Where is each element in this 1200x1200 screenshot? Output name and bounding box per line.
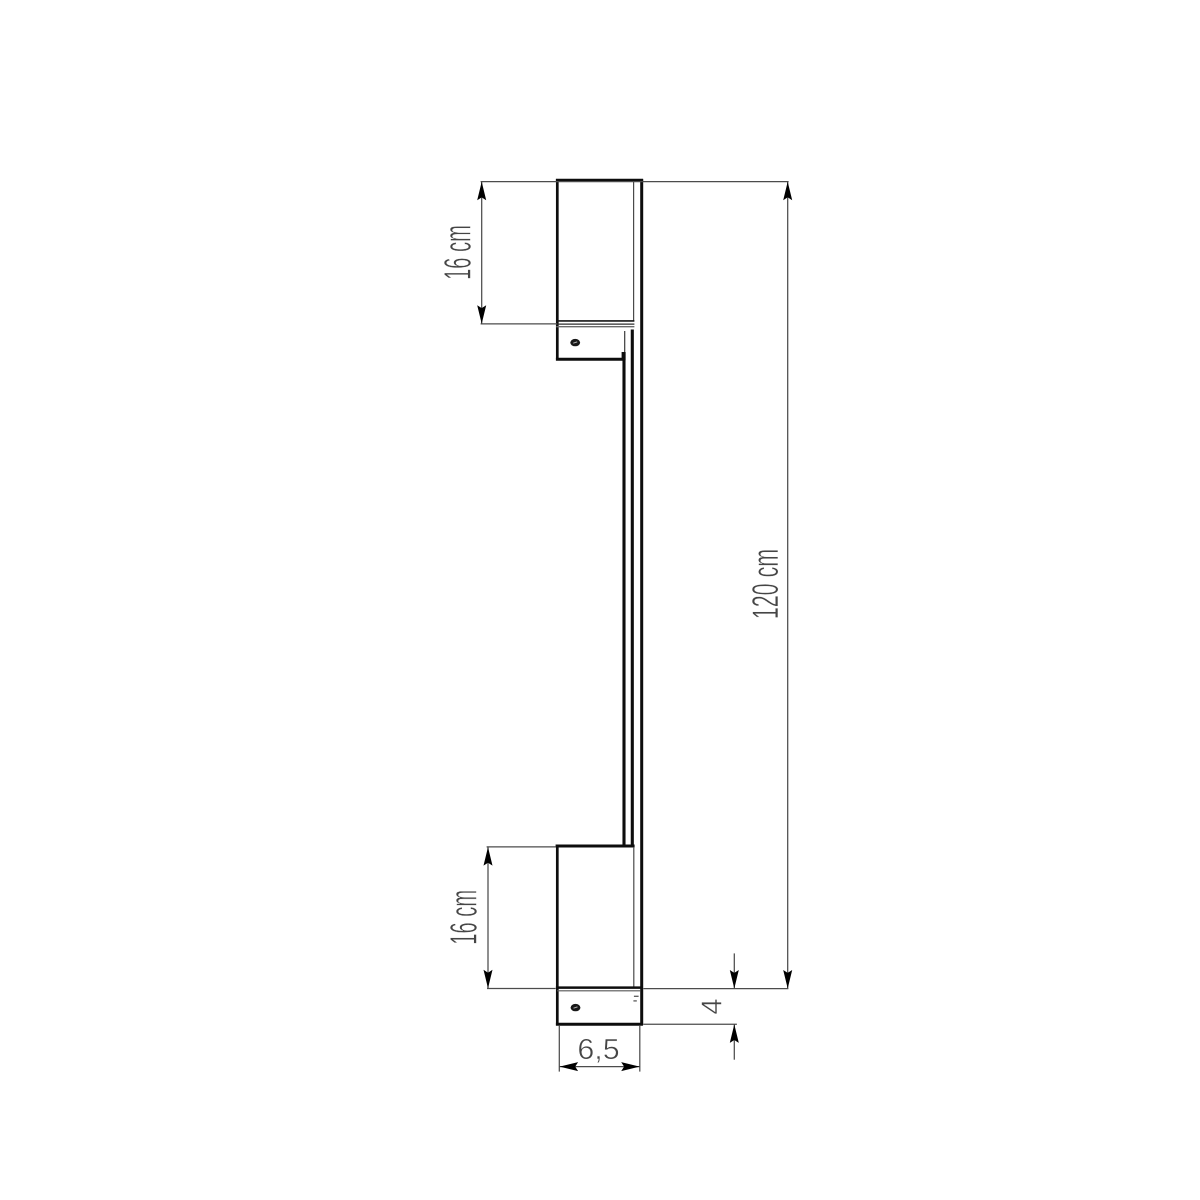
svg-text:16 cm: 16 cm [443, 890, 485, 945]
svg-text:4: 4 [697, 998, 729, 1014]
svg-text:120 cm: 120 cm [746, 549, 786, 619]
svg-text:6,5: 6,5 [577, 1034, 619, 1066]
svg-text:16 cm: 16 cm [437, 225, 479, 280]
